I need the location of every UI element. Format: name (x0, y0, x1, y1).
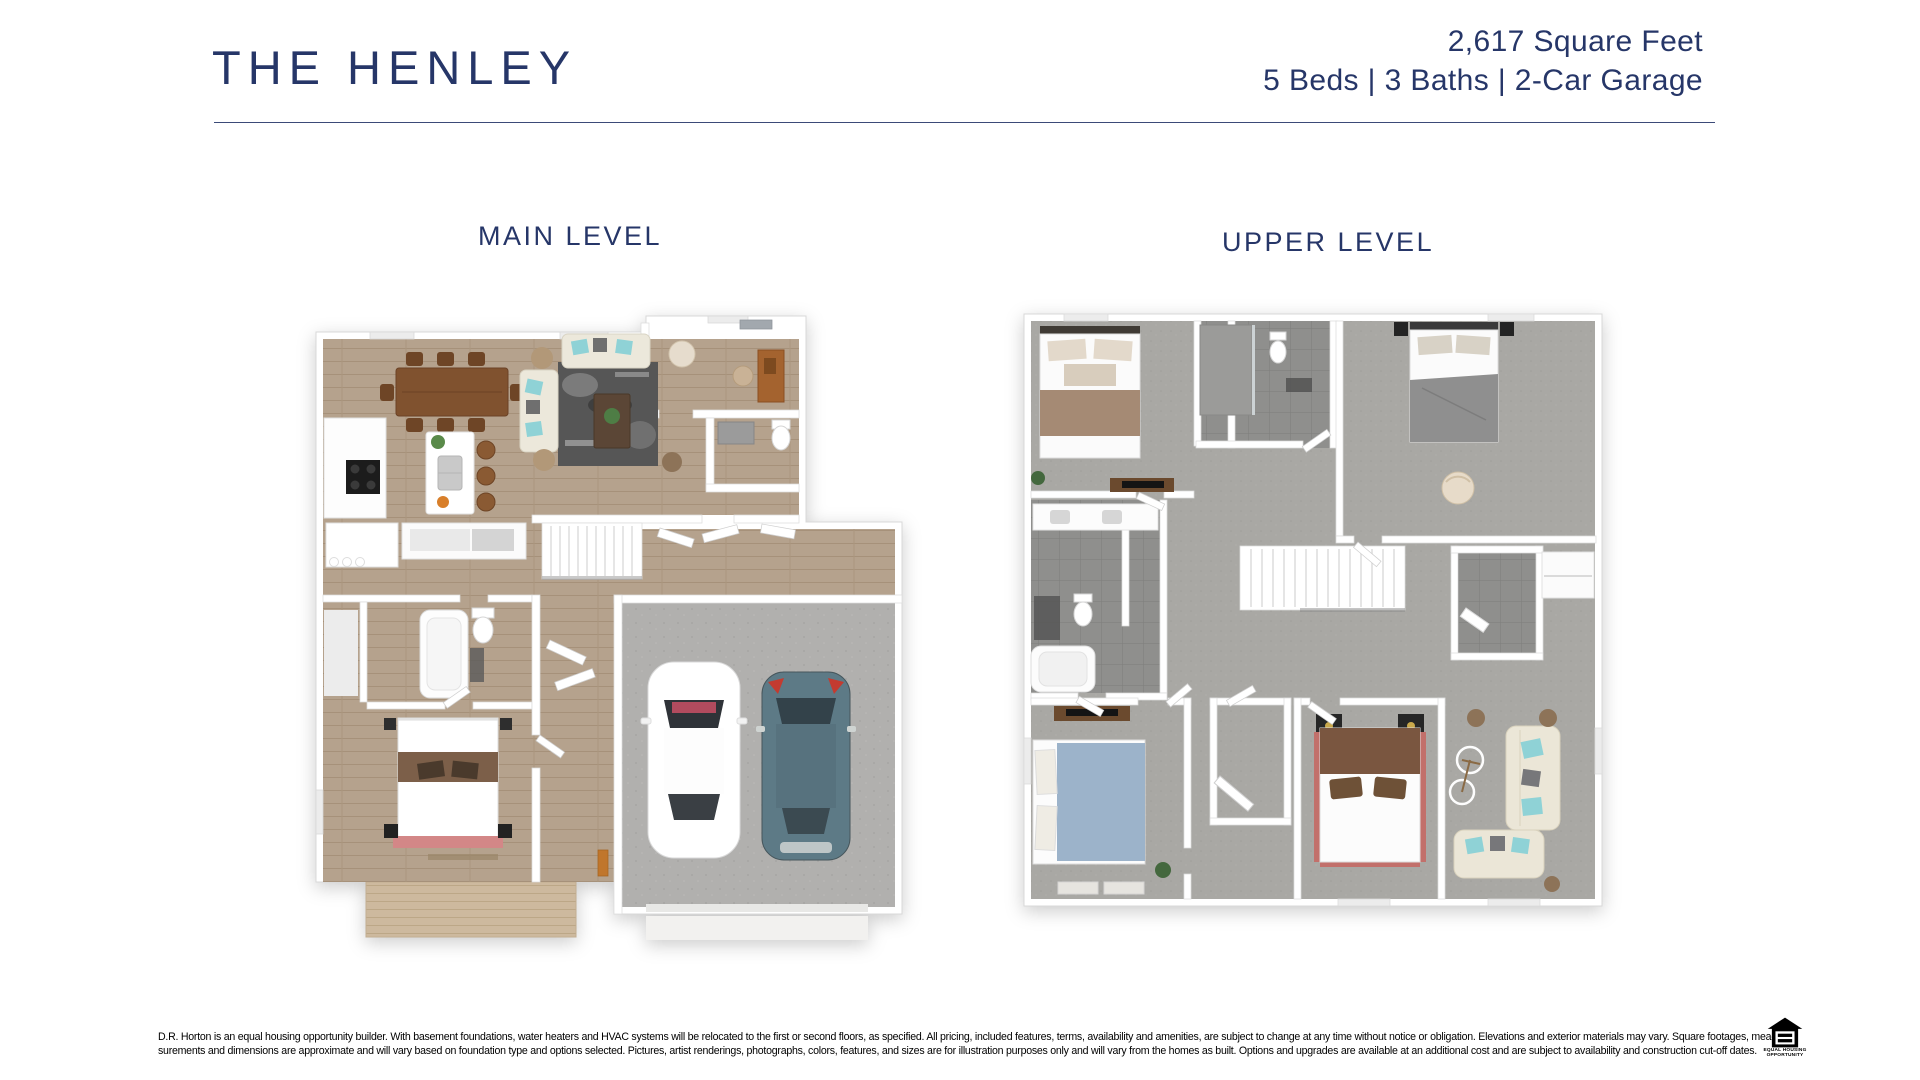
bed-blanket (1320, 728, 1420, 774)
upper-level-label: UPPER LEVEL (1222, 227, 1434, 258)
laundry-floor (1458, 553, 1536, 653)
shower (1200, 325, 1252, 415)
garage-door (646, 904, 868, 912)
home-specs: 2,617 Square Feet 5 Beds | 3 Baths | 2-C… (1263, 22, 1703, 100)
bed-pillow (1373, 776, 1407, 799)
pouf (1539, 709, 1557, 727)
pouf (662, 452, 682, 472)
bath-rug (1286, 378, 1312, 392)
closet-shelves (1542, 552, 1594, 598)
bed-pillow (451, 761, 479, 780)
desk (758, 350, 784, 402)
main-level-label: MAIN LEVEL (478, 221, 662, 252)
teal-pillow (615, 339, 633, 355)
loft-loveseat (1454, 830, 1544, 878)
cooktop (346, 460, 380, 494)
island-plant (431, 435, 445, 449)
pouf (1467, 709, 1485, 727)
pouf (533, 449, 555, 471)
island-stools (477, 441, 495, 511)
rear-window (668, 794, 720, 820)
car-teal (756, 672, 856, 860)
toilet (1270, 341, 1286, 363)
plant (1031, 471, 1045, 485)
car-seats (672, 702, 716, 713)
loft-sofa (1506, 726, 1560, 830)
fruit-bowl (437, 496, 449, 508)
sofa-left (520, 370, 558, 452)
eho-text-line-2: OPPORTUNITY (1762, 1053, 1808, 1058)
upper-level-floorplan (1018, 308, 1608, 918)
blue-blanket (1057, 743, 1145, 861)
equal-housing-logo: EQUAL HOUSING OPPORTUNITY (1762, 1017, 1808, 1059)
teal-pillow (571, 339, 589, 356)
garage-entry-door (598, 850, 608, 876)
driveway-apron (646, 916, 868, 940)
square-feet-text: 2,617 Square Feet (1263, 22, 1703, 61)
skylight (740, 320, 772, 329)
staircase (1240, 546, 1405, 612)
tv (1122, 481, 1164, 488)
main-level-floorplan (310, 310, 920, 975)
gray-pillow (593, 338, 607, 352)
bed-pillow (1329, 776, 1363, 799)
desk-chair (733, 366, 753, 386)
bed-pillow (1093, 339, 1132, 362)
header-divider (214, 122, 1715, 123)
table-plant (604, 408, 620, 424)
main-bedroom (384, 718, 512, 860)
bed-blanket (1040, 390, 1140, 436)
pouf (531, 347, 553, 369)
gray-throw (1410, 374, 1498, 442)
flyer-page: THE HENLEY 2,617 Square Feet 5 Beds | 3 … (0, 0, 1920, 1080)
linen-closet (324, 610, 358, 696)
toilet (473, 617, 493, 643)
pouf (1544, 876, 1560, 892)
bed-blanket (398, 752, 498, 782)
staircase (542, 523, 642, 580)
plant (1155, 862, 1171, 878)
disclaimer-line-1: D.R. Horton is an equal housing opportun… (158, 1031, 1775, 1045)
vanity-cabinet (718, 422, 754, 444)
disclaimer-line-2: surements and dimensions are approximate… (158, 1045, 1775, 1059)
bed-bench (393, 836, 503, 848)
disclaimer: D.R. Horton is an equal housing opportun… (158, 1031, 1775, 1058)
deck (366, 882, 576, 937)
car-white (641, 662, 747, 858)
bath-rug (1034, 596, 1060, 640)
beds-baths-garage-text: 5 Beds | 3 Baths | 2-Car Garage (1263, 61, 1703, 100)
page-title: THE HENLEY (212, 40, 577, 95)
bedroom-red (1314, 714, 1426, 867)
sofa-top (562, 334, 650, 368)
bath-rug (470, 648, 484, 682)
accent-pillow (1064, 364, 1116, 386)
armchair (669, 341, 695, 367)
bed-pillow (1047, 339, 1086, 362)
toilet (1074, 602, 1092, 626)
toilet (772, 426, 790, 450)
equal-housing-house-icon (1767, 1017, 1803, 1048)
